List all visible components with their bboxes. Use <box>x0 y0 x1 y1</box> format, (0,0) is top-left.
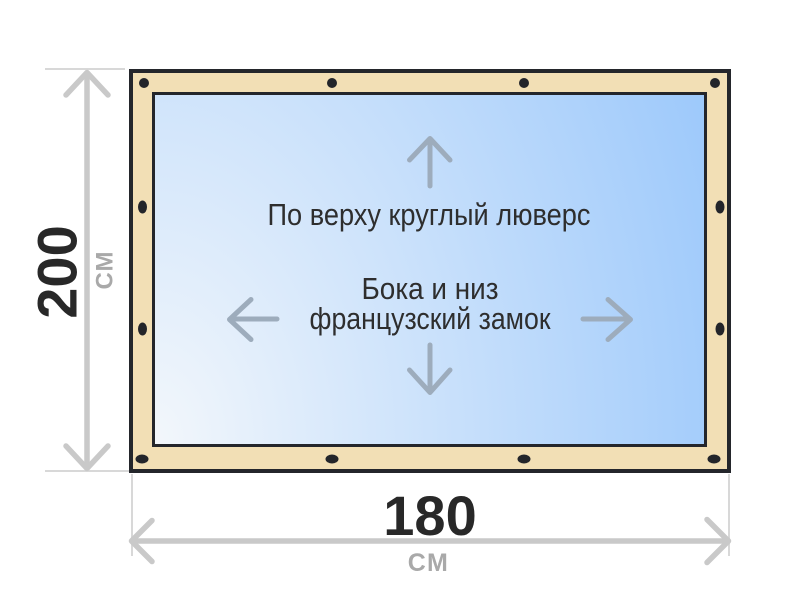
svg-text:французский замок: французский замок <box>310 301 551 336</box>
svg-text:200: 200 <box>26 225 89 318</box>
svg-text:СМ: СМ <box>408 549 450 577</box>
svg-text:180: 180 <box>383 484 476 547</box>
svg-text:СМ: СМ <box>92 250 119 289</box>
svg-text:По верху круглый люверс: По верху круглый люверс <box>268 197 591 232</box>
